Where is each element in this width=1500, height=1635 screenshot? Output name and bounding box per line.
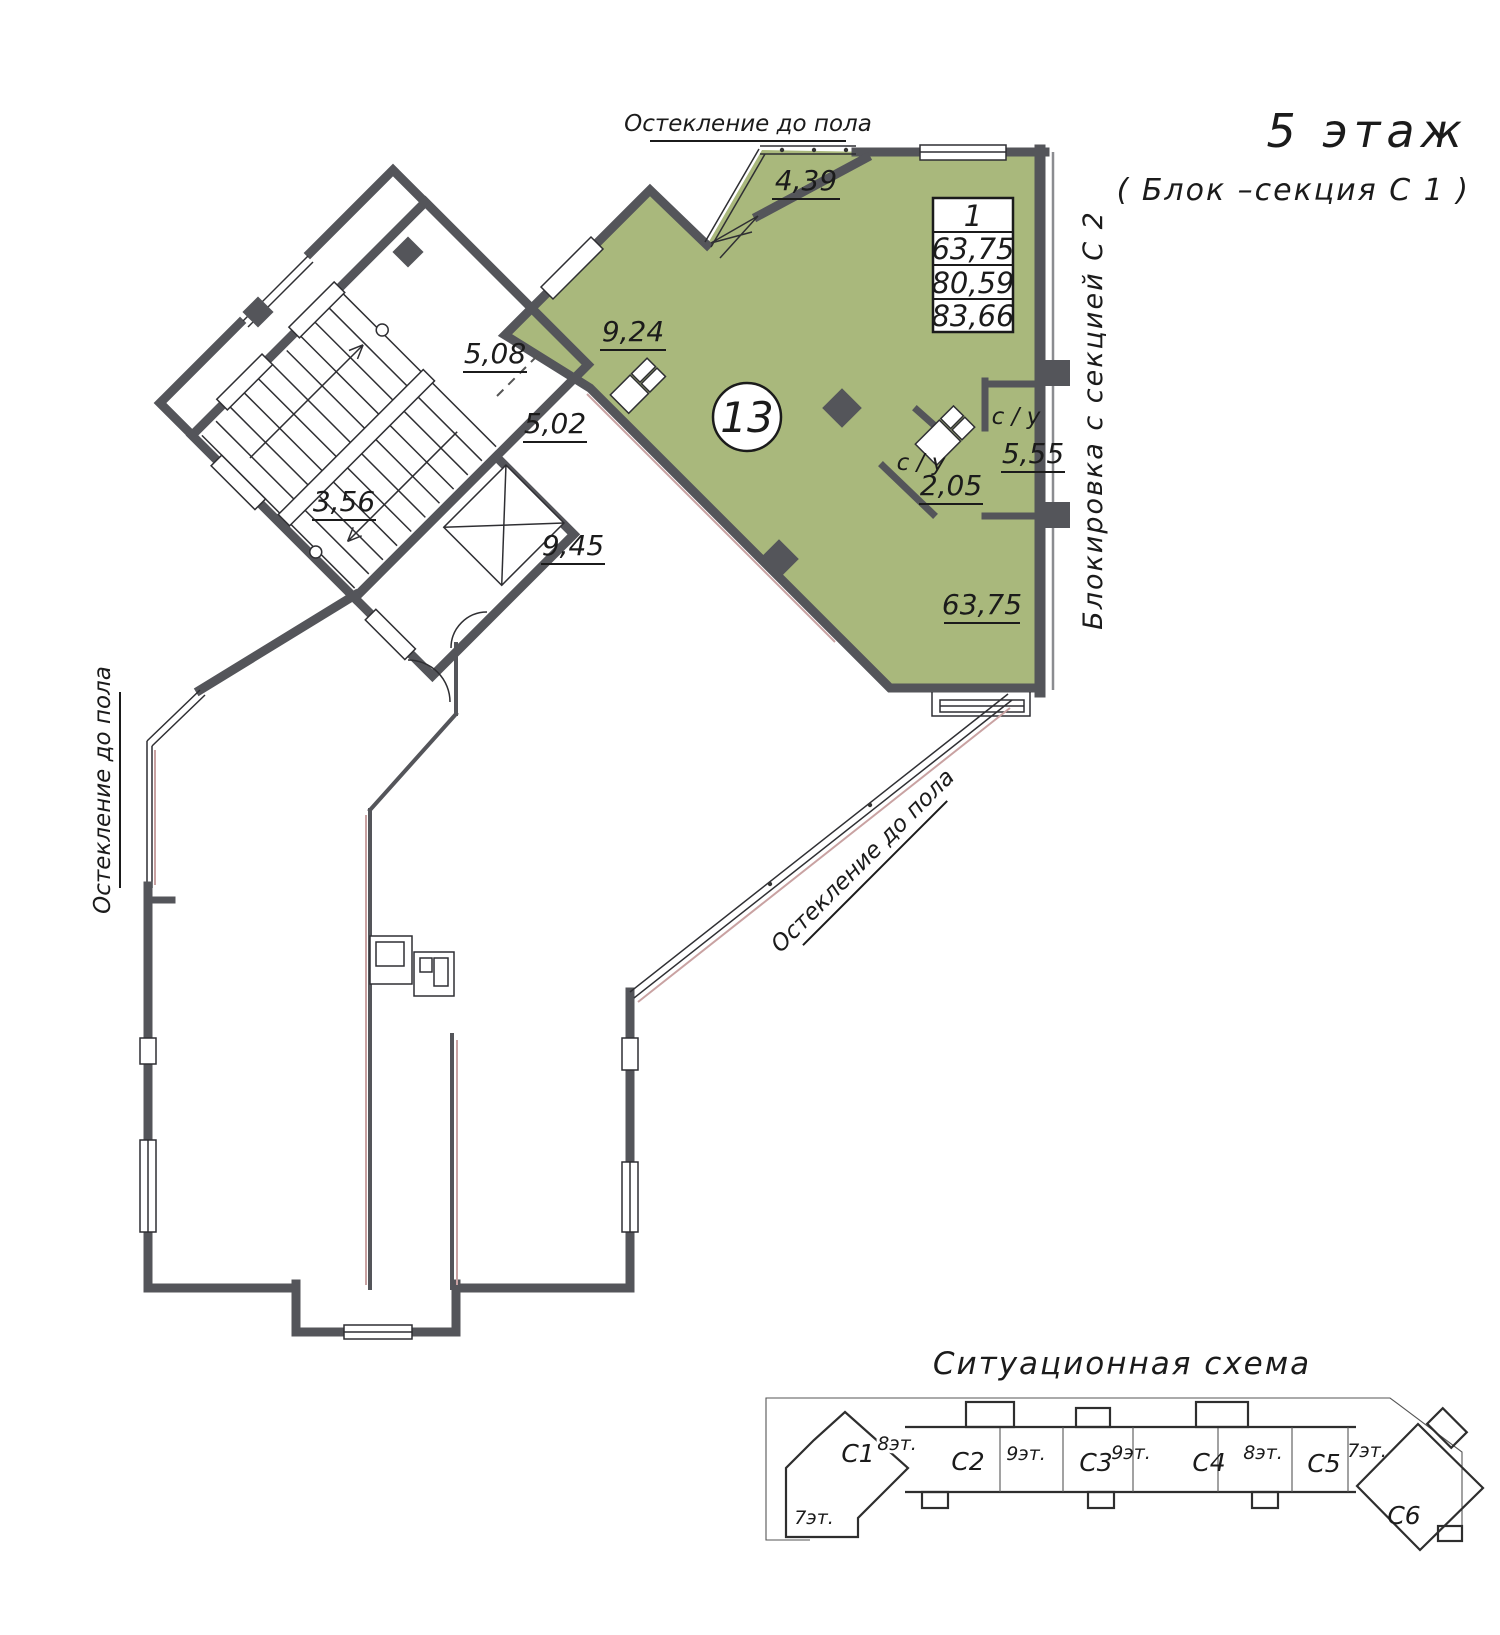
stair-shaft (1196, 1402, 1248, 1427)
window (217, 354, 273, 410)
wall-stub (1040, 502, 1070, 528)
bathroom-fixtures (370, 936, 454, 996)
sink-basin (376, 942, 404, 966)
area-balcony: 4,39 (775, 164, 837, 197)
glazing-left-note: Остекление до пола (90, 666, 116, 914)
stair-shaft (1076, 1408, 1110, 1427)
table-living-area: 63,75 (931, 232, 1014, 266)
window (365, 609, 415, 659)
stair-shaft (1427, 1408, 1467, 1448)
toilet-bowl (434, 958, 448, 986)
page-title: 5 этаж (1266, 104, 1468, 158)
floor-plan-page: 5 этаж ( Блок –секция С 1 ) (0, 0, 1500, 1635)
glazing-line (630, 694, 1008, 992)
stair-step (343, 294, 496, 447)
glazing-left (147, 690, 205, 888)
c6-stair-shaft (1427, 1408, 1467, 1448)
scheme-label-c3: С3 (1079, 1448, 1112, 1477)
apartment-number-badge: 13 (713, 383, 781, 451)
scheme-title: Ситуационная схема (933, 1346, 1311, 1382)
entrance-gallery (160, 170, 424, 434)
glazing-line (152, 695, 205, 746)
stair-step (244, 393, 397, 546)
scheme-label-c1: С1 (841, 1439, 874, 1468)
wall-segment (200, 595, 355, 690)
window-top (920, 145, 1006, 160)
header: 5 этаж ( Блок –секция С 1 ) (1117, 104, 1470, 208)
glazing-diagonal (630, 694, 1012, 1002)
area-hall-lower: 5,02 (524, 407, 586, 440)
note-underline (803, 801, 947, 945)
section-blocking-group: Блокировка с секцией С 2 (1078, 210, 1109, 630)
scheme-floors-c2: 9эт. (1006, 1443, 1046, 1465)
wc-large-label: с / у (992, 404, 1041, 430)
area-living-room: 63,75 (942, 588, 1022, 621)
glazing-diagonal-note-group: Остекление до пола (766, 764, 962, 960)
entry-porch (922, 1492, 948, 1508)
window (140, 1038, 156, 1064)
area-hall-upper: 5,08 (464, 337, 526, 370)
glazing-dot (844, 148, 848, 152)
scheme-floors-c4: 8эт. (1243, 1442, 1283, 1464)
section-blocking-note: Блокировка с секцией С 2 (1078, 210, 1109, 630)
staircase (196, 288, 501, 593)
glazing-top-note: Остекление до пола (624, 111, 872, 137)
scheme-label-c4: С4 (1192, 1448, 1225, 1477)
gallery-wall (160, 170, 424, 434)
toilet-tank (420, 958, 432, 972)
glazing-line (634, 700, 1012, 998)
glazing-line (147, 690, 200, 741)
apartment-number: 13 (720, 393, 773, 442)
stair-step (287, 351, 440, 504)
entry-porch (1252, 1492, 1278, 1508)
scheme-label-c2: С2 (951, 1447, 984, 1476)
site-boundary (766, 1398, 1462, 1542)
column (242, 296, 273, 327)
stair-step (315, 322, 468, 475)
area-wc-large: 5,55 (1002, 437, 1064, 470)
apartment-info-table: 1 63,75 80,59 83,66 (931, 198, 1014, 333)
wall-stub (1040, 360, 1070, 386)
scheme-label-c6: С6 (1387, 1501, 1420, 1530)
area-wc-small: 2,05 (920, 469, 982, 502)
area-bedroom: 9,24 (602, 315, 664, 348)
stair-step (329, 308, 482, 461)
entry-porch (1088, 1492, 1114, 1508)
scheme-floors-c3: 9эт. (1111, 1442, 1151, 1464)
table-total-area: 83,66 (931, 299, 1014, 333)
situational-scheme: Ситуационная схема С1 8эт. С2 9эт. С3 (766, 1346, 1483, 1550)
area-corridor: 9,45 (542, 529, 604, 562)
glazing-dot (768, 882, 772, 886)
glazing-left-note-group: Остекление до пола (90, 666, 120, 914)
column (392, 236, 423, 267)
scheme-floors-c1: 8эт. (877, 1433, 917, 1455)
rail-post (374, 322, 391, 339)
window (289, 282, 345, 338)
stair-step (301, 336, 454, 489)
lower-apartment (140, 595, 1012, 1339)
scheme-floors-c5: 7эт. (1347, 1440, 1387, 1462)
scheme-c1-lower-floors: 7эт. (794, 1507, 834, 1529)
apartment-13-region: 13 1 63,75 80,59 83,66 (505, 145, 1070, 716)
scheme-label-c5: С5 (1307, 1449, 1340, 1478)
floor-plan-drawing: 5 этаж ( Блок –секция С 1 ) (0, 0, 1500, 1635)
glazing-tint-line (638, 708, 1010, 1002)
table-rooms-count: 1 (964, 199, 982, 233)
bay-window-living (932, 692, 1030, 716)
table-area: 80,59 (931, 266, 1014, 300)
glazing-dot (812, 148, 816, 152)
page-subtitle: ( Блок –секция С 1 ) (1117, 173, 1470, 208)
window (622, 1038, 638, 1070)
stair-shaft (966, 1402, 1014, 1427)
area-stair-landing: 3,56 (313, 485, 375, 518)
glazing-dot (868, 803, 872, 807)
glazing-dot (780, 148, 784, 152)
